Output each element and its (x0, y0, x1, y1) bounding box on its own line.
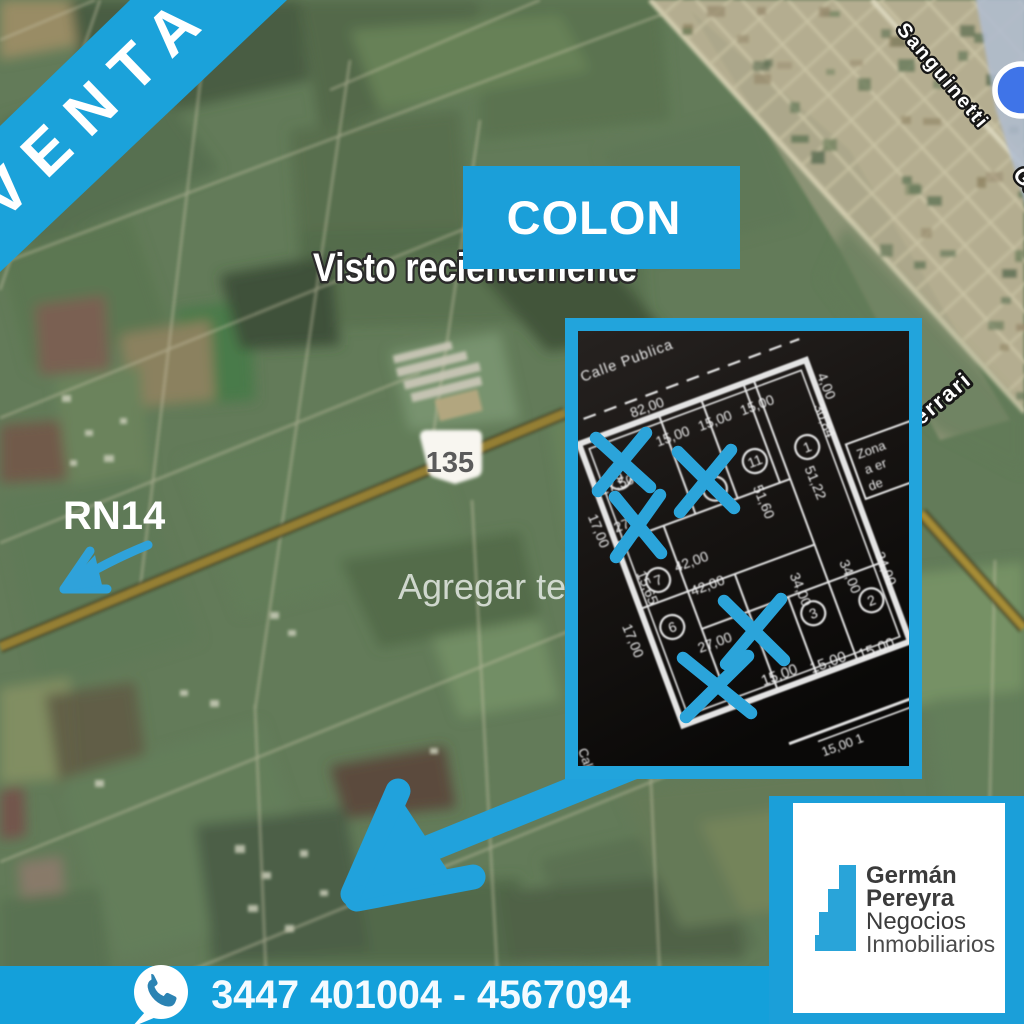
svg-text:Inmobiliarios: Inmobiliarios (866, 931, 995, 957)
svg-text:3447 401004 - 4567094: 3447 401004 - 4567094 (211, 973, 631, 1017)
svg-text:RN14: RN14 (63, 494, 166, 538)
svg-text:COLON: COLON (507, 191, 682, 244)
svg-text:135: 135 (426, 447, 474, 479)
